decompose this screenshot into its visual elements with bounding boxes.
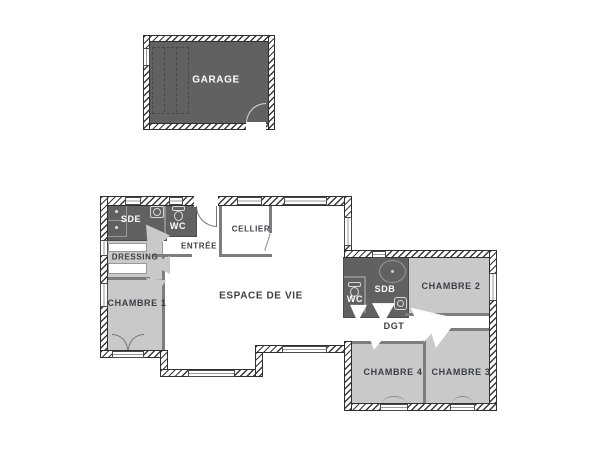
room-label-sdb: SDB [375,284,396,294]
window-espace-bottom [282,346,327,353]
room-label-espace-de-vie: ESPACE DE VIE [219,291,303,302]
room-label-chambre4: CHAMBRE 4 [364,367,423,377]
garage-wall-right [268,35,275,130]
wall-cellier-bottom [219,254,272,257]
wall-wing-top [344,250,497,258]
room-label-chambre1: CHAMBRE 1 [108,298,167,308]
garage-window [143,48,150,66]
garage-wall-top [143,35,275,42]
room-label-cellier: CELLIER [232,225,270,234]
window-chambre3 [450,404,475,411]
wall-left [100,196,108,358]
window-sdb [372,251,386,258]
room-label-chambre3: CHAMBRE 3 [432,367,491,377]
room-label-sde: SDE [121,214,141,224]
sink-basin-icon [397,300,404,307]
toilet-bowl-icon [174,211,183,221]
sde-faucet-dot [115,210,118,213]
garage-storage-dash-line [164,47,165,112]
wardrobe-icon [108,243,147,252]
window-bay [188,370,235,377]
room-label-entree: ENTRÉE [181,242,217,251]
room-label-garage: GARAGE [192,75,240,86]
wall-chambre4-top [352,341,423,344]
room-label-wc-nuit: WC [347,294,363,304]
room-label-dressing: DRESSING [112,253,159,262]
window-cellier [237,197,262,205]
window-wc-entree [169,197,183,205]
window-espace-right [344,217,352,246]
room-label-dgt: DGT [384,321,405,331]
window-dressing [100,240,108,256]
front-door-leaf-icon [216,206,217,227]
cellier-door-leaf-icon [264,233,271,250]
dgt-closet [447,316,489,328]
floor-plan: GARAGE [0,0,600,450]
wardrobe-icon [108,263,147,274]
wall-wing-left [344,341,352,411]
window-chambre2 [489,273,497,301]
garage-storage-dashed [152,47,189,114]
sde-faucet-dot [115,226,118,229]
room-label-wc-entree: WC [170,221,186,231]
wall-cellier-left [219,206,222,257]
washing-machine-drum-icon [153,208,161,216]
room-label-chambre2: CHAMBRE 2 [422,281,481,291]
garage-door-opening [246,122,266,131]
wall-wc-top [344,276,366,278]
window-espace-top [284,197,327,205]
front-door-arc-icon [196,206,217,227]
garage-storage-dash-line [176,47,177,112]
french-door-chambre1 [112,351,144,358]
shower-drain-dot [391,270,394,273]
window-chambre4 [380,404,408,411]
window-sde [125,197,141,205]
